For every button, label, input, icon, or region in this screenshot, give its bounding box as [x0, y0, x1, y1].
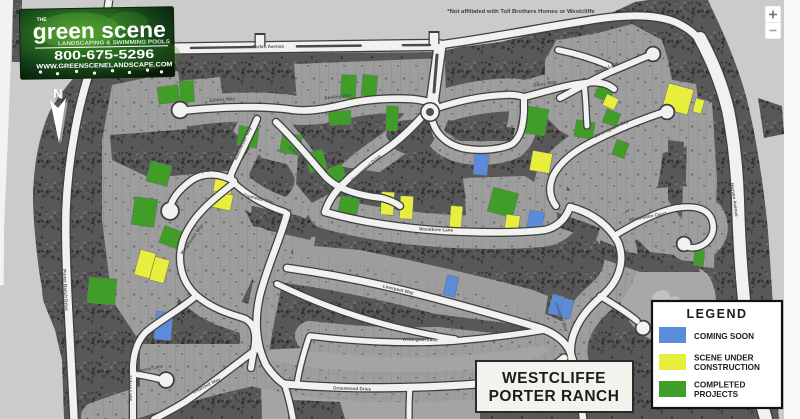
- svg-text:Alders Lane: Alders Lane: [128, 375, 134, 402]
- svg-text:PORTER RANCH: PORTER RANCH: [489, 388, 620, 405]
- svg-text:COMPLETED: COMPLETED: [694, 381, 745, 390]
- svg-text:PROJECTS: PROJECTS: [694, 390, 739, 399]
- svg-text:*Not affiliated with Toll Brot: *Not affiliated with Toll Brothers Homes…: [447, 9, 595, 15]
- svg-text:Carbin Avenue: Carbin Avenue: [252, 44, 285, 50]
- svg-text:Wellington Lane: Wellington Lane: [402, 337, 438, 343]
- svg-text:WESTCLIFFE: WESTCLIFFE: [502, 370, 606, 387]
- svg-text:CONSTRUCTION: CONSTRUCTION: [694, 363, 760, 372]
- svg-text:N: N: [53, 86, 62, 101]
- svg-text:800-675-5296: 800-675-5296: [54, 47, 154, 63]
- svg-text:SCENE UNDER: SCENE UNDER: [694, 354, 754, 363]
- svg-text:COMING SOON: COMING SOON: [694, 332, 754, 341]
- svg-text:LEGEND: LEGEND: [686, 307, 747, 321]
